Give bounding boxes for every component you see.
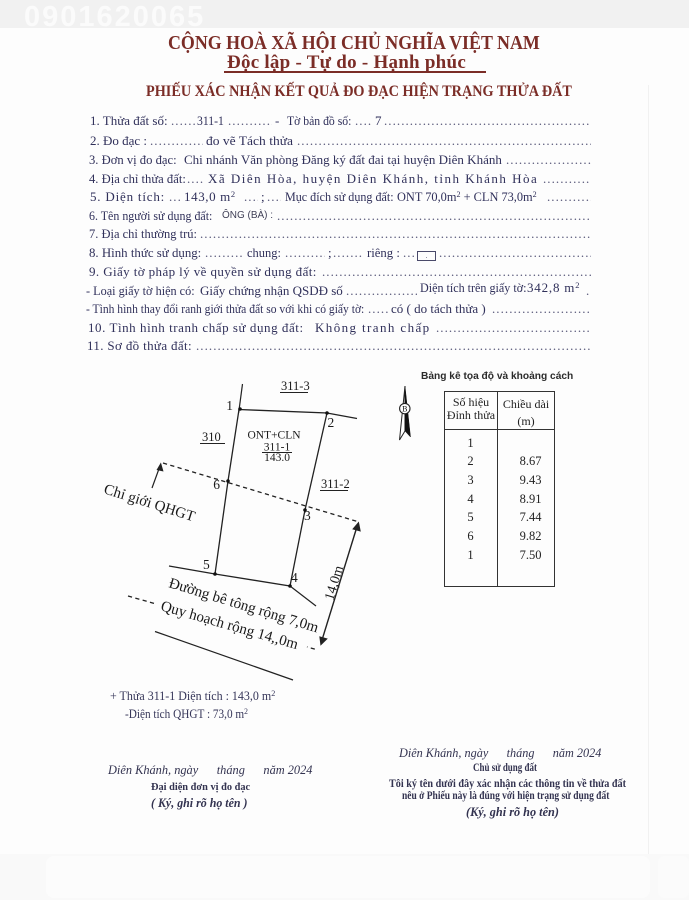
svg-text:3: 3	[304, 508, 311, 523]
svg-text:Chỉ giới QHGT: Chỉ giới QHGT	[102, 482, 197, 526]
svg-text:311-3: 311-3	[281, 379, 310, 393]
svg-text:5: 5	[203, 557, 210, 572]
svg-text:310: 310	[202, 430, 221, 444]
svg-text:6: 6	[213, 477, 220, 492]
svg-text:2: 2	[328, 415, 335, 430]
svg-text:14,0m: 14,0m	[322, 564, 347, 602]
svg-text:311-2: 311-2	[321, 477, 350, 491]
svg-text:1: 1	[226, 398, 233, 413]
svg-text:B: B	[402, 405, 407, 414]
svg-text:ONT+CLN: ONT+CLN	[247, 430, 301, 442]
svg-text:143.0: 143.0	[264, 452, 290, 464]
svg-text:4: 4	[291, 570, 298, 585]
